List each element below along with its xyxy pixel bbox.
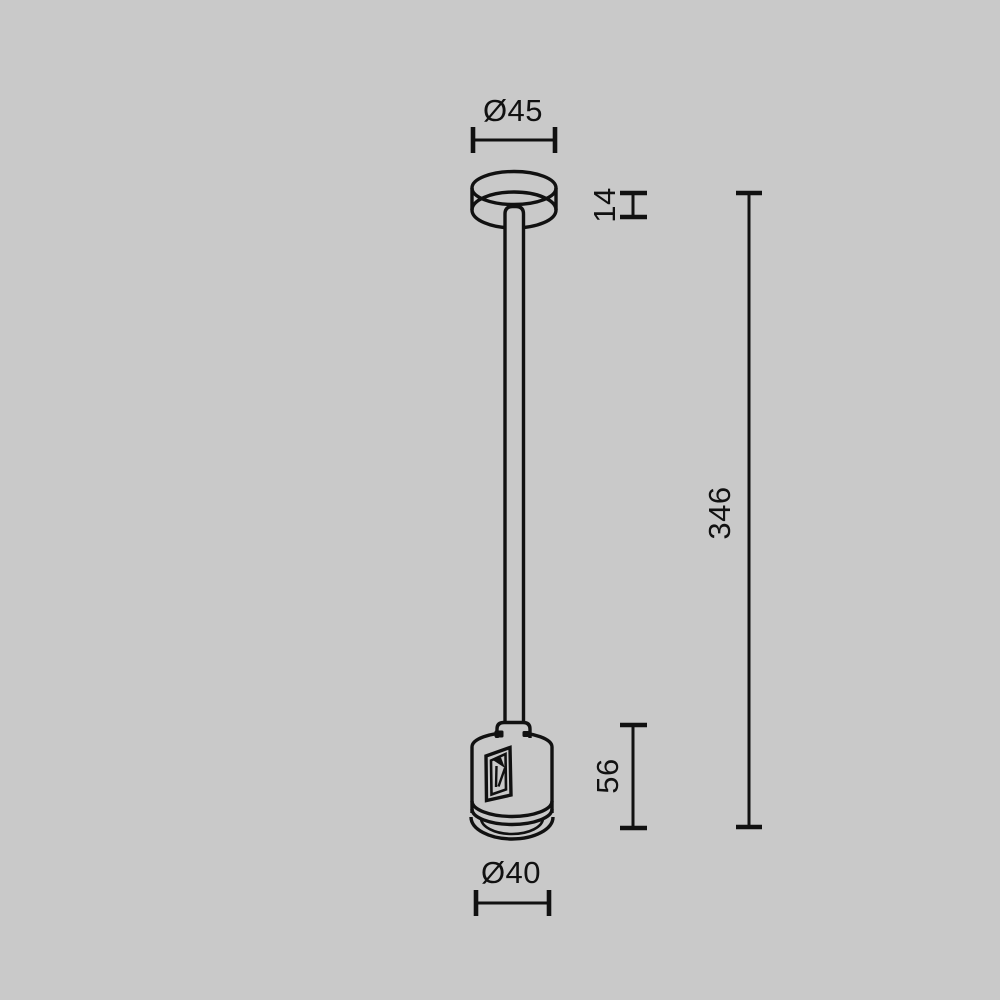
overall-length-label: 346 — [702, 486, 737, 539]
dim-overall-length: 346 — [702, 193, 762, 827]
track-connector — [471, 723, 553, 840]
dim-canopy-height: 14 — [587, 187, 647, 222]
suspension-rod — [505, 207, 524, 723]
collar-screw-right — [523, 731, 530, 737]
canopy-top-rim — [472, 172, 556, 205]
pendant-mount-drawing: Ø45 — [0, 0, 1000, 1000]
canopy-diameter-label: Ø45 — [483, 93, 543, 128]
canopy-height-label: 14 — [587, 187, 622, 222]
lever-edge-left — [496, 766, 497, 787]
lever-edge-right — [499, 768, 506, 787]
connector-band-upper — [472, 801, 552, 817]
collar-screw-left — [495, 731, 504, 738]
dim-connector-height: 56 — [590, 725, 647, 828]
dim-canopy-diameter: Ø45 — [473, 93, 555, 153]
technical-drawing-canvas: Ø45 — [0, 0, 1000, 1000]
connector-height-label: 56 — [590, 758, 625, 793]
dim-connector-diameter: Ø40 — [476, 855, 549, 916]
lever-wedge — [492, 758, 505, 769]
connector-diameter-label: Ø40 — [481, 855, 541, 890]
lever-window — [486, 748, 511, 801]
